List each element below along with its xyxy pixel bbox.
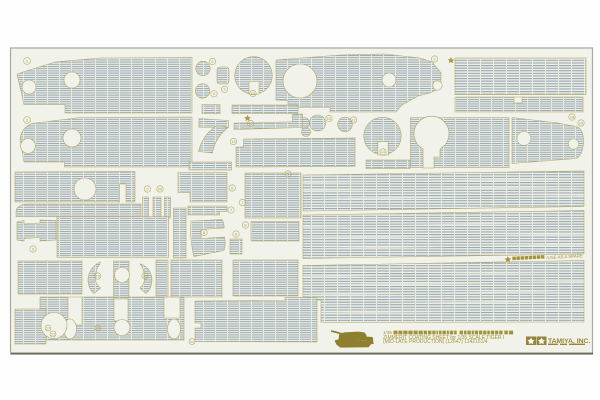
svg-text:12: 12 xyxy=(351,117,356,122)
svg-text:15: 15 xyxy=(143,273,148,278)
svg-text:19: 19 xyxy=(579,120,584,125)
svg-text:13: 13 xyxy=(381,149,386,154)
svg-text:21: 21 xyxy=(51,331,56,336)
svg-text:14: 14 xyxy=(231,139,236,144)
svg-text:10: 10 xyxy=(327,116,332,121)
svg-text:18: 18 xyxy=(570,114,575,119)
svg-text:(MID-LATE PRODUCTION) (12647): (MID-LATE PRODUCTION) (12647) 1142161/4 xyxy=(383,339,488,345)
svg-text:22: 22 xyxy=(96,325,101,330)
svg-text:16: 16 xyxy=(251,91,256,96)
svg-text:20: 20 xyxy=(158,186,163,191)
svg-text:15: 15 xyxy=(95,273,100,278)
svg-text:17: 17 xyxy=(46,325,51,330)
